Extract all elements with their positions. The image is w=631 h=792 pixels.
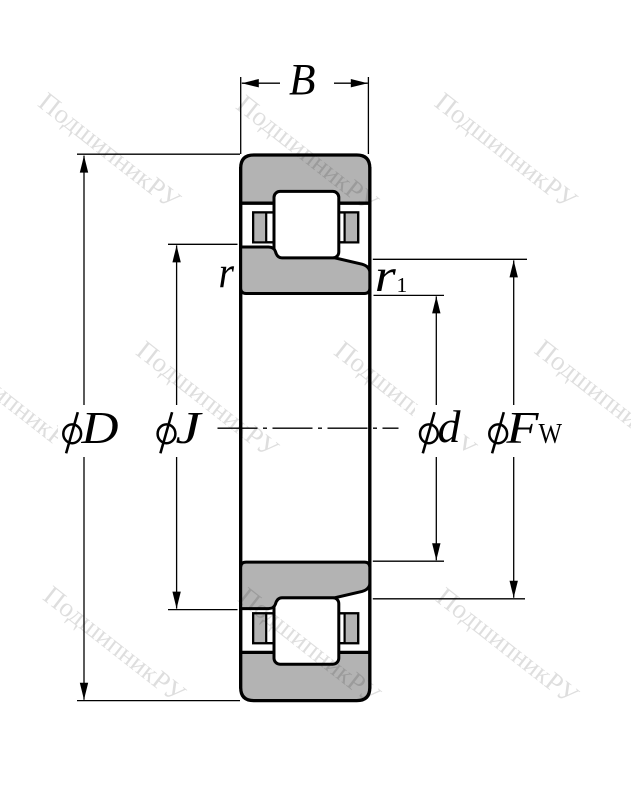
svg-text:D: D bbox=[80, 402, 118, 453]
svg-text:d: d bbox=[438, 402, 462, 452]
svg-text:r: r bbox=[219, 248, 235, 297]
svg-text:1: 1 bbox=[397, 273, 408, 297]
svg-text:J: J bbox=[176, 403, 204, 453]
svg-text:W: W bbox=[539, 419, 563, 450]
svg-text:F: F bbox=[505, 402, 539, 453]
svg-text:B: B bbox=[289, 55, 316, 104]
svg-text:r: r bbox=[375, 250, 397, 302]
